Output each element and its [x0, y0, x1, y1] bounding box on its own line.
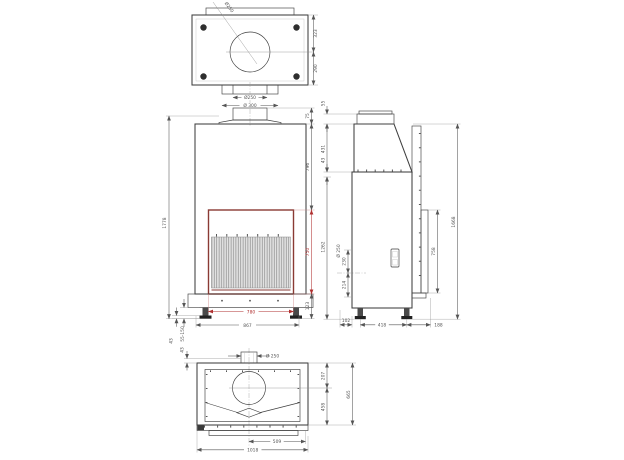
side-rear-step — [412, 293, 426, 298]
front-left-foot — [203, 308, 209, 316]
dim-outlet-below: 214 — [342, 281, 348, 290]
dim-flue-diameter: Ø250 — [223, 0, 236, 14]
front-view — [188, 108, 313, 319]
side-connector-slot — [393, 252, 398, 258]
dim-body-height: 1262 — [320, 241, 326, 252]
dim-total-height: 1778 — [162, 217, 168, 228]
base-screw — [221, 300, 223, 302]
drawing-canvas: Ø250 323 290 Ø250 Ø 300 — [0, 0, 624, 460]
bottom-base-strip — [197, 425, 308, 431]
dim-rear-duct-height: 758 — [431, 247, 437, 256]
side-view — [337, 111, 428, 319]
dim-collar-offset: 43 — [180, 347, 186, 353]
dim-rear-to-center: 207 — [320, 372, 326, 381]
dim-hood-cap: 55 — [320, 101, 326, 107]
dim-opening-width: 780 — [247, 310, 256, 316]
base-screw — [249, 300, 251, 302]
top-view-rear-flange — [206, 8, 294, 15]
dim-rear-outlet-diameter: Ø 250 — [335, 244, 342, 257]
dim-side-total-height: 1668 — [451, 216, 457, 227]
dim-flue-to-front: 290 — [313, 64, 319, 73]
top-view-depth-dimensions: 323 290 — [308, 15, 319, 85]
dim-collar-inner: Ø250 — [244, 94, 256, 101]
side-hood — [354, 124, 412, 172]
bottom-width-dimensions: 509 1018 — [197, 431, 308, 454]
bolt-hole — [200, 73, 206, 79]
top-view: Ø250 323 290 — [192, 0, 319, 85]
side-left-dimensions: Ø 250 230 214 — [335, 244, 352, 297]
dim-foot-pad: 43 — [169, 338, 175, 344]
bottom-inner-frame — [205, 370, 300, 422]
dim-rear-to-flue: 323 — [313, 29, 319, 38]
bottom-right-dimensions: 207 458 665 — [308, 363, 356, 425]
front-right-foot — [293, 308, 299, 316]
flue-collar: Ø250 Ø 300 — [222, 82, 278, 126]
baffle-line-right — [261, 403, 301, 413]
bolt-hole — [200, 24, 206, 30]
dim-feet-spacing: 418 — [378, 323, 387, 329]
dim-opening-height: 750 — [305, 248, 311, 257]
side-connector-detail — [391, 249, 399, 267]
front-height-dimension: 1778 — [162, 116, 219, 319]
base-screw — [277, 300, 279, 302]
dim-base-height: 123 — [305, 302, 311, 311]
corner-marker — [197, 425, 204, 430]
dim-hood-step: 43 — [320, 158, 326, 164]
side-flue-stub — [357, 114, 394, 124]
front-width-dimensions: 780 867 — [196, 294, 299, 329]
side-rear-foot-pad — [401, 316, 412, 319]
side-front-foot — [358, 308, 364, 316]
technical-drawing-page: Ø250 323 290 Ø250 Ø 300 — [0, 0, 624, 460]
louvre-grille — [212, 237, 291, 288]
bolt-hole — [293, 73, 299, 79]
bottom-left-dimension: 43 — [180, 347, 242, 370]
side-front-foot-pad — [355, 316, 366, 319]
side-body — [352, 172, 412, 308]
front-feet-dimensions: 55-150 43 — [169, 299, 200, 344]
dim-total-width: 1018 — [247, 448, 258, 454]
dim-center-to-front: 458 — [320, 403, 326, 412]
bolt-hole — [293, 24, 299, 30]
dim-feet-adjust-range: 55-150 — [180, 326, 186, 342]
dim-front-foot-offset: 102 — [342, 318, 351, 324]
dim-depth: 665 — [346, 390, 352, 399]
side-stub-cap — [359, 111, 392, 114]
dim-collar-height: 75 — [305, 113, 311, 119]
side-rear-foot — [404, 308, 410, 316]
flue-leader-line — [213, 2, 257, 64]
dim-top-to-opening: 796 — [305, 163, 311, 172]
dim-rear-overhang: 188 — [434, 323, 443, 329]
baffle-line-left — [205, 403, 238, 413]
side-right-dimensions: 758 1668 — [412, 124, 460, 319]
front-right-foot-pad — [290, 316, 302, 319]
side-rear-panel — [412, 126, 421, 293]
dim-feet-span: 867 — [243, 323, 252, 329]
dim-outlet-above: 230 — [342, 257, 348, 266]
dim-hood-height: 431 — [320, 145, 326, 154]
front-left-foot-pad — [200, 316, 212, 319]
bottom-view: Ø 250 — [197, 348, 332, 453]
dim-bottom-collar: Ø 250 — [266, 353, 279, 360]
side-connector-slot — [393, 260, 398, 266]
top-view-body — [192, 15, 308, 85]
side-rear-duct — [421, 210, 428, 293]
side-bottom-dimensions: 102 418 188 — [340, 298, 443, 329]
dim-center-to-edge: 509 — [273, 439, 282, 445]
bottom-lower-strip — [209, 431, 298, 436]
